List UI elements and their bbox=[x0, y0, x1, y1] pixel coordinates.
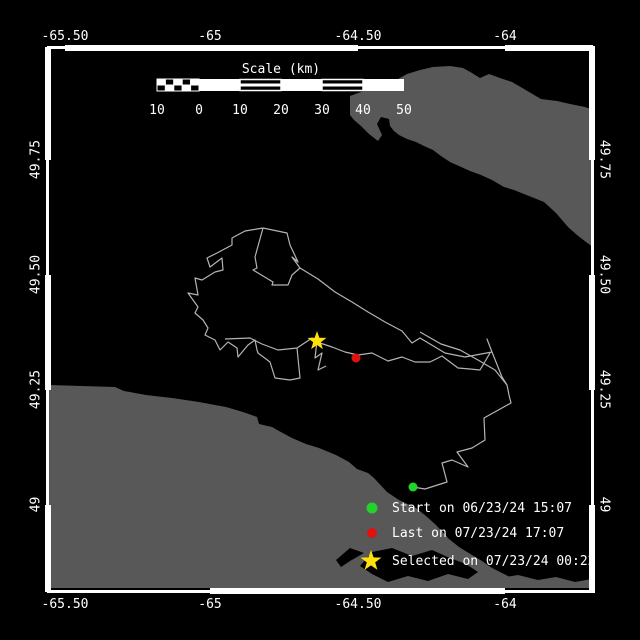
lon-label-bottom: -65 bbox=[170, 597, 250, 612]
axis-interval-bar bbox=[45, 505, 51, 592]
scale-tick-label: 30 bbox=[307, 103, 337, 118]
last-marker bbox=[352, 354, 361, 363]
lon-label-top: -64 bbox=[465, 29, 545, 44]
track-polyline bbox=[253, 228, 300, 285]
lon-label-top: -65.50 bbox=[25, 29, 105, 44]
lat-label-left: 49.25 bbox=[29, 360, 44, 420]
scale-bar-checker bbox=[157, 85, 165, 91]
lon-label-top: -65 bbox=[170, 29, 250, 44]
lat-label-right: 49.75 bbox=[597, 130, 612, 190]
axis-interval-bar bbox=[65, 45, 358, 51]
axis-interval-bar bbox=[589, 47, 595, 160]
legend-start-label: Start on 06/23/24 15:07 bbox=[392, 501, 572, 516]
lat-label-left: 49.50 bbox=[29, 245, 44, 305]
track-polyline bbox=[188, 228, 263, 357]
track-polyline bbox=[263, 228, 507, 385]
track-polyline bbox=[413, 385, 511, 489]
lon-label-bottom: -64.50 bbox=[318, 597, 398, 612]
scale-tick-label: 50 bbox=[389, 103, 419, 118]
axis-interval-bar bbox=[45, 275, 51, 390]
scale-bar-checker bbox=[165, 85, 173, 91]
track-polyline bbox=[257, 348, 300, 380]
scale-tick-label: 0 bbox=[184, 103, 214, 118]
legend-start-marker bbox=[367, 503, 378, 514]
axis-interval-bar bbox=[505, 45, 593, 51]
track-polyline bbox=[420, 332, 507, 385]
scale-bar-segment bbox=[281, 79, 322, 91]
selected-marker bbox=[307, 331, 326, 349]
axis-interval-bar bbox=[589, 505, 595, 592]
scale-bar-checker bbox=[157, 79, 165, 85]
legend-last-label: Last on 07/23/24 17:07 bbox=[392, 526, 564, 541]
scale-tick-label: 40 bbox=[348, 103, 378, 118]
lat-label-left: 49.75 bbox=[29, 130, 44, 190]
legend-last-marker bbox=[367, 528, 377, 538]
scale-bar-checker bbox=[174, 79, 182, 85]
lat-label-right: 49.25 bbox=[597, 360, 612, 420]
start-marker bbox=[409, 483, 418, 492]
map-canvas: Scale (km) 10 0 10 20 30 40 50 -65.50 -6… bbox=[0, 0, 640, 640]
legend-selected-label: Selected on 07/23/24 00:22 bbox=[392, 554, 596, 569]
map-plot bbox=[0, 0, 640, 640]
scale-bar-checker bbox=[182, 79, 190, 85]
lon-label-bottom: -64 bbox=[465, 597, 545, 612]
scale-bar-checker bbox=[174, 85, 182, 91]
scale-bar-segment bbox=[363, 79, 404, 91]
scale-bar-checker bbox=[191, 85, 199, 91]
scale-tick-label: 10 bbox=[142, 103, 172, 118]
lon-label-top: -64.50 bbox=[318, 29, 398, 44]
scale-bar-title: Scale (km) bbox=[221, 62, 341, 77]
axis-interval-bar bbox=[210, 588, 505, 594]
lat-label-right: 49 bbox=[597, 475, 612, 535]
scale-bar-segment bbox=[199, 79, 240, 91]
land-polygon bbox=[468, 573, 592, 588]
scale-bar-segment-stripe bbox=[240, 84, 281, 87]
axis-interval-bar bbox=[45, 47, 51, 160]
lon-label-bottom: -65.50 bbox=[25, 597, 105, 612]
scale-bar-segment-stripe bbox=[322, 84, 363, 87]
axis-interval-bar bbox=[589, 275, 595, 390]
land-polygon bbox=[350, 66, 593, 247]
lat-label-right: 49.50 bbox=[597, 245, 612, 305]
scale-bar-checker bbox=[165, 79, 173, 85]
scale-bar-checker bbox=[182, 85, 190, 91]
scale-bar-checker bbox=[191, 79, 199, 85]
scale-tick-label: 10 bbox=[225, 103, 255, 118]
scale-tick-label: 20 bbox=[266, 103, 296, 118]
lat-label-left: 49 bbox=[29, 475, 44, 535]
